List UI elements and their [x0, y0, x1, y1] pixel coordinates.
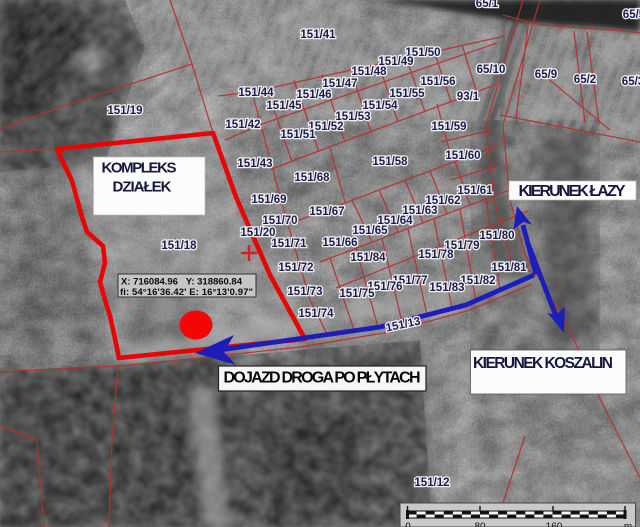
- svg-text:151/83: 151/83: [429, 282, 464, 294]
- svg-text:151/67: 151/67: [309, 206, 344, 218]
- svg-text:DOJAZD DROGA PO PŁYTACH: DOJAZD DROGA PO PŁYTACH: [224, 370, 421, 387]
- svg-text:fi: 54°16'36.42' E: 16°13'0.97: fi: 54°16'36.42' E: 16°13'0.97": [120, 287, 253, 298]
- svg-text:KIERUNEK ŁAZY: KIERUNEK ŁAZY: [519, 183, 626, 200]
- svg-text:151/44: 151/44: [238, 87, 274, 99]
- svg-text:65/3: 65/3: [622, 76, 640, 88]
- svg-text:151/41: 151/41: [300, 29, 336, 41]
- svg-text:151/56: 151/56: [420, 76, 455, 88]
- svg-text:151/75: 151/75: [339, 288, 375, 300]
- svg-text:151/20: 151/20: [240, 227, 275, 239]
- svg-text:DZIAŁEK: DZIAŁEK: [113, 179, 172, 196]
- svg-text:151/45: 151/45: [266, 100, 302, 112]
- svg-text:160: 160: [546, 522, 563, 527]
- svg-text:151/70: 151/70: [262, 215, 297, 227]
- svg-text:151/82: 151/82: [460, 275, 495, 287]
- svg-text:151/61: 151/61: [457, 185, 493, 197]
- svg-text:65/10: 65/10: [477, 64, 506, 76]
- svg-text:93/1: 93/1: [457, 91, 480, 103]
- svg-text:151/19: 151/19: [107, 105, 142, 117]
- svg-text:151/80: 151/80: [479, 230, 514, 242]
- svg-text:X: 716084.96 Y: 318860.84: X: 716084.96 Y: 318860.84: [121, 277, 243, 288]
- svg-text:151/59: 151/59: [431, 121, 466, 133]
- svg-text:151/74: 151/74: [298, 308, 334, 320]
- svg-text:65/5: 65/5: [623, 9, 640, 21]
- svg-text:151/58: 151/58: [372, 156, 408, 168]
- svg-text:151/48: 151/48: [351, 66, 387, 78]
- svg-text:65/2: 65/2: [574, 74, 596, 86]
- svg-text:151/71: 151/71: [271, 238, 307, 250]
- svg-text:151/78: 151/78: [418, 249, 454, 261]
- svg-text:151/65: 151/65: [352, 225, 388, 237]
- svg-text:151/73: 151/73: [287, 286, 322, 298]
- svg-text:151/18: 151/18: [161, 240, 197, 252]
- svg-text:80: 80: [474, 522, 486, 527]
- svg-text:151/46: 151/46: [296, 89, 331, 101]
- svg-text:151/72: 151/72: [278, 262, 313, 274]
- svg-text:0: 0: [405, 522, 411, 527]
- svg-text:151/81: 151/81: [491, 262, 527, 274]
- svg-text:KOMPLEKS: KOMPLEKS: [102, 160, 177, 177]
- svg-text:KIERUNEK KOSZALIN: KIERUNEK KOSZALIN: [473, 355, 613, 372]
- svg-text:151/60: 151/60: [445, 150, 480, 162]
- svg-text:m: m: [624, 522, 632, 527]
- svg-text:151/84: 151/84: [350, 252, 386, 264]
- svg-text:151/66: 151/66: [322, 237, 357, 249]
- svg-text:151/51: 151/51: [280, 129, 316, 141]
- svg-text:151/68: 151/68: [294, 172, 330, 184]
- svg-text:151/55: 151/55: [389, 88, 425, 100]
- svg-text:151/42: 151/42: [225, 119, 260, 131]
- svg-text:65/9: 65/9: [535, 69, 557, 81]
- svg-text:65/1: 65/1: [476, 0, 499, 10]
- svg-text:151/12: 151/12: [414, 477, 449, 489]
- svg-text:151/69: 151/69: [251, 194, 286, 206]
- svg-text:151/43: 151/43: [237, 158, 272, 170]
